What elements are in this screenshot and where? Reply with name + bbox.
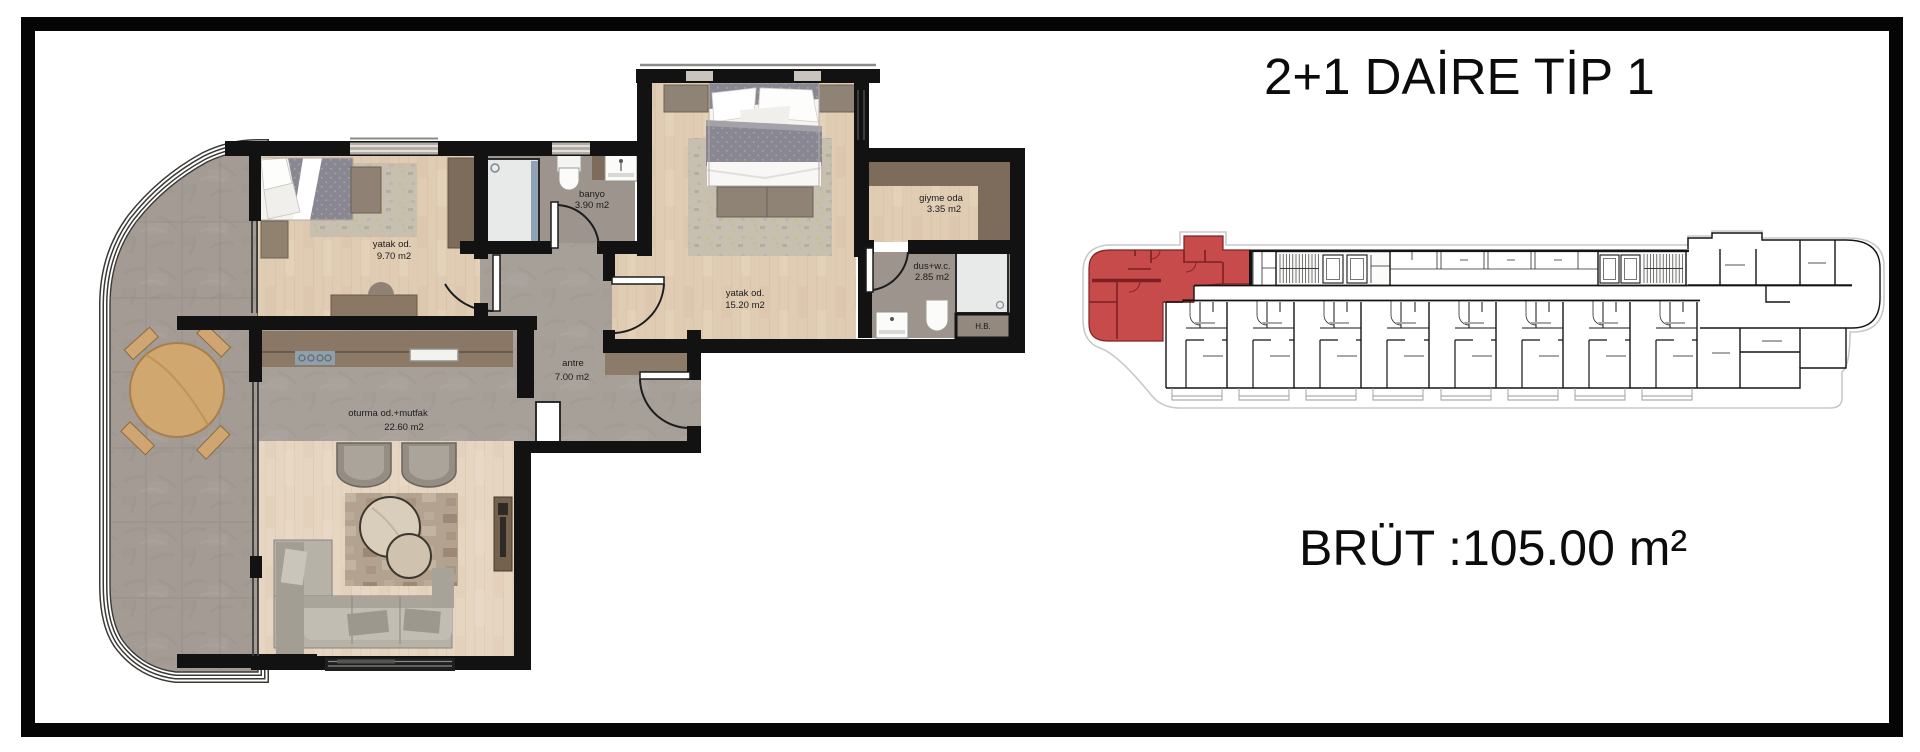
svg-text:2+1 DAİRE TİP 1: 2+1 DAİRE TİP 1 — [1264, 48, 1655, 105]
svg-text:22.60 m2: 22.60 m2 — [384, 422, 424, 433]
svg-text:giyme oda: giyme oda — [919, 193, 964, 204]
svg-text:yatak od.: yatak od. — [373, 239, 412, 250]
svg-text:yatak od.: yatak od. — [726, 288, 765, 299]
svg-text:15.20 m2: 15.20 m2 — [725, 300, 765, 311]
svg-text:9.70 m2: 9.70 m2 — [377, 251, 411, 262]
svg-text:antre: antre — [562, 358, 584, 369]
svg-text:7.00 m2: 7.00 m2 — [555, 372, 589, 383]
svg-text:3.90 m2: 3.90 m2 — [575, 200, 609, 211]
svg-text:oturma od.+mutfak: oturma od.+mutfak — [348, 408, 428, 419]
svg-text:dus+w.c.: dus+w.c. — [913, 261, 950, 272]
svg-text:H.B.: H.B. — [975, 322, 991, 331]
svg-text:3.35 m2: 3.35 m2 — [927, 204, 961, 215]
svg-text:BRÜT :105.00 m²: BRÜT :105.00 m² — [1299, 520, 1687, 576]
svg-text:banyo: banyo — [579, 189, 605, 200]
svg-text:2.85 m2: 2.85 m2 — [915, 272, 949, 283]
